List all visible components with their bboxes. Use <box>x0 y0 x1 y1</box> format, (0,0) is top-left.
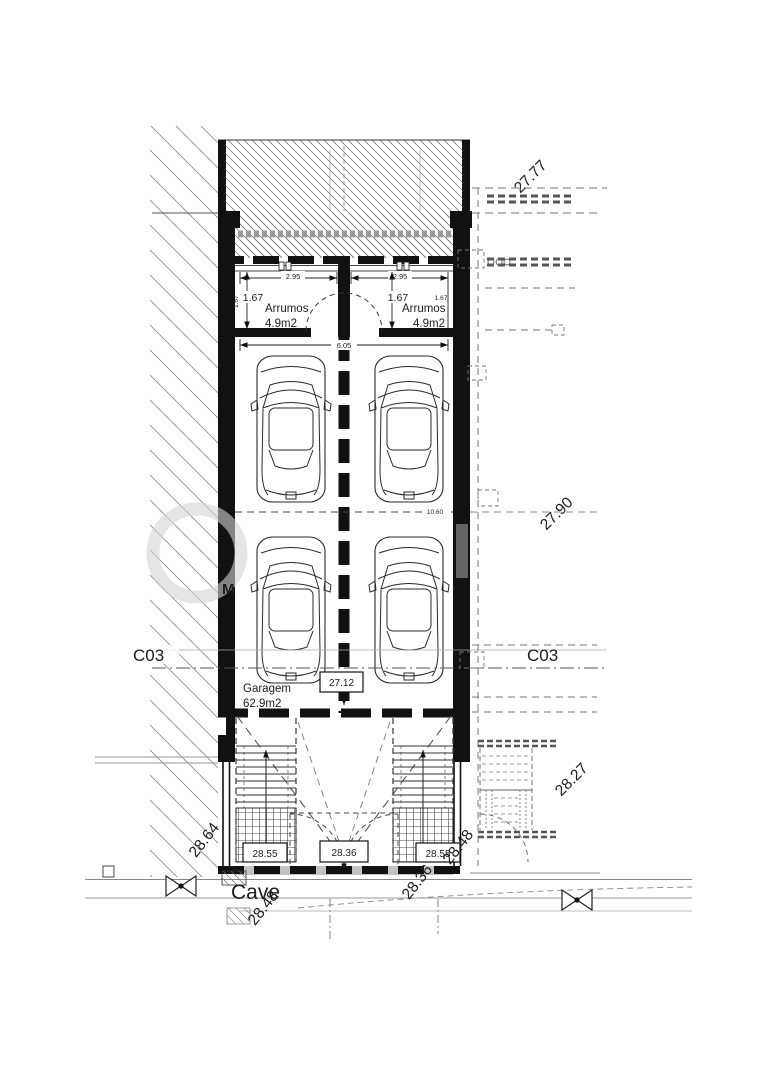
storage-left-name: Arrumos <box>265 303 309 315</box>
entry-level-center: 28.36 <box>331 848 356 859</box>
garage-floor-level-value: 27.12 <box>329 678 354 689</box>
storage-left-area: 4.9m2 <box>265 318 297 330</box>
car-bottom-right <box>369 537 449 683</box>
garage-label: Garagem 62.9m2 <box>243 683 291 710</box>
entry-level-left: 28.55 <box>252 849 277 860</box>
dim-overall-width: 6.05 <box>337 341 352 350</box>
dim-storage-right-width: 2.95 <box>393 272 408 281</box>
survey-marker-right-icon <box>562 890 592 910</box>
storage-right-name: Arrumos <box>402 303 446 315</box>
neighbour-stair-right <box>470 741 600 873</box>
garage-area: 62.9m2 <box>243 698 281 710</box>
storage-labels: Arrumos 4.9m2 Arrumos 4.9m2 <box>265 303 446 330</box>
level-right-mid: 27.90 <box>537 494 577 534</box>
parked-cars <box>251 356 449 683</box>
watermark-letter: M <box>222 581 235 598</box>
car-top-right <box>369 356 449 502</box>
dim-garage-depth: 10.60 <box>427 509 444 516</box>
floor-plan-drawing: 2.95 2.95 1.67 1.67 1.67 1.67 6.05 Arrum… <box>0 0 763 1080</box>
garage-depth-line: 10.60 <box>235 506 597 516</box>
dim-storage-left-depth-small: 1.67 <box>233 295 240 308</box>
section-label-left: C03 <box>133 646 164 665</box>
basement-floor-plan-page: 2.95 2.95 1.67 1.67 1.67 1.67 6.05 Arrum… <box>0 0 763 1080</box>
level-rear-yard: 27.77 <box>511 157 550 196</box>
car-bottom-left <box>251 537 331 683</box>
dim-storage-left-width: 2.95 <box>286 272 301 281</box>
stair-left <box>236 718 296 862</box>
car-top-left <box>251 356 331 502</box>
terrain-hatch-left <box>150 126 218 877</box>
street: Cave <box>85 866 692 940</box>
level-street-far-right: 28.27 <box>552 760 591 799</box>
stair-right <box>393 718 453 862</box>
section-label-right: C03 <box>527 646 558 665</box>
dim-storage-left-depth: 1.67 <box>243 292 264 304</box>
storage-right-area: 4.9m2 <box>413 318 445 330</box>
rear-yard-block <box>218 140 472 258</box>
dim-storage-right-depth-small: 1.67 <box>435 295 448 302</box>
garage-name: Garagem <box>243 683 291 695</box>
